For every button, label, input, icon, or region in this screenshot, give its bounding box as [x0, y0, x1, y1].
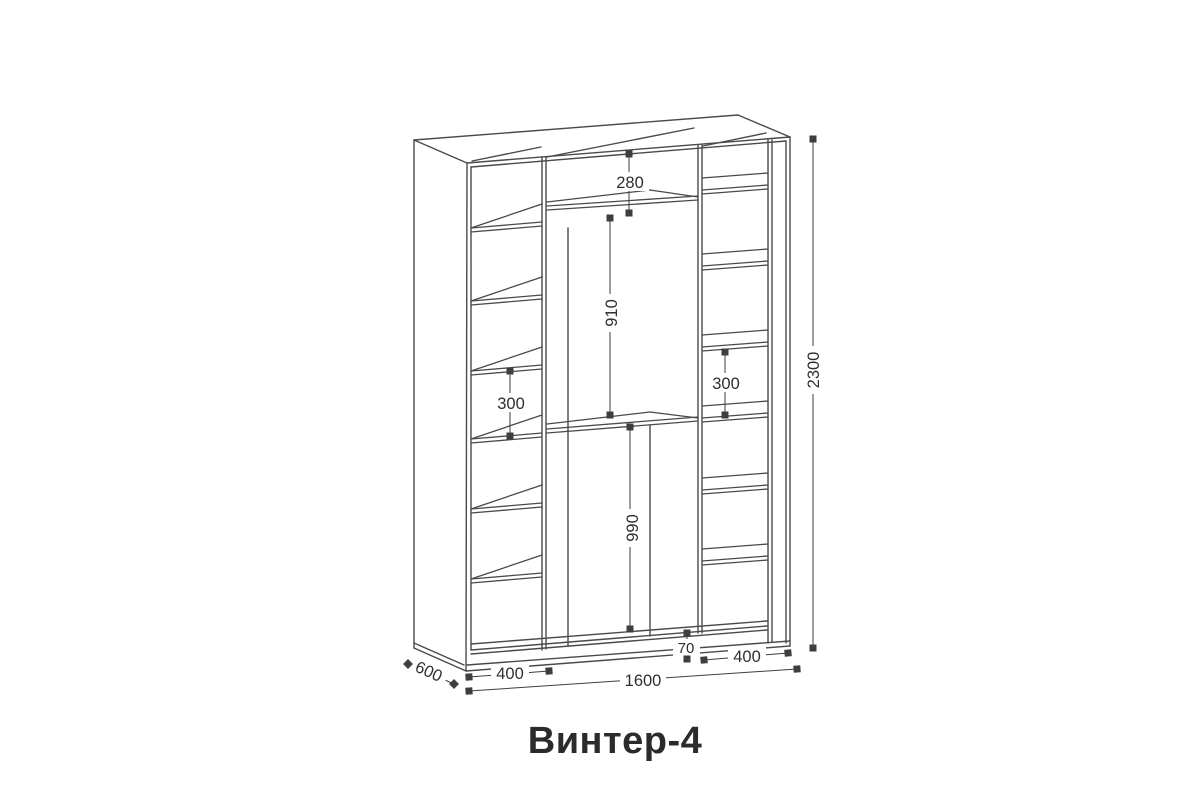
dim-label-70: 70	[678, 640, 695, 657]
dim-label-400-right: 400	[733, 648, 761, 666]
dim-lower-section-height: 990	[622, 509, 642, 547]
dim-label-990: 990	[624, 514, 642, 542]
dim-label-300-left: 300	[497, 395, 525, 413]
dim-total-height: 2300	[803, 346, 823, 394]
dim-base-height: 70	[673, 639, 700, 657]
dim-label-300-right: 300	[712, 375, 740, 393]
center-top-shelf	[547, 190, 698, 210]
right-column-shelves	[702, 173, 768, 565]
dim-total-width: 1600	[620, 670, 666, 690]
cabinet-structure	[414, 115, 790, 671]
dim-left-shelf-spacing: 300	[492, 393, 530, 413]
dim-label-910: 910	[603, 299, 621, 327]
dim-label-400-left: 400	[496, 665, 524, 683]
dim-left-column-width: 400	[491, 664, 529, 683]
wardrobe-technical-drawing: 280 910 990 300 300 70 2300 400	[0, 0, 1200, 798]
dimension-markers	[403, 136, 816, 695]
dim-label-2300: 2300	[805, 352, 823, 389]
product-title: Винтер-4	[528, 720, 703, 762]
dim-upper-section-height: 910	[601, 294, 621, 332]
dim-top-shelf-height: 280	[611, 172, 649, 192]
dim-label-1600: 1600	[625, 672, 662, 690]
center-middle-shelf	[547, 412, 698, 433]
dim-label-280: 280	[616, 174, 644, 192]
dim-right-shelf-spacing: 300	[707, 373, 745, 393]
dim-depth: 600	[408, 655, 450, 688]
dim-right-column-width: 400	[728, 647, 766, 666]
technical-drawing-page: 280 910 990 300 300 70 2300 400	[0, 0, 1200, 798]
